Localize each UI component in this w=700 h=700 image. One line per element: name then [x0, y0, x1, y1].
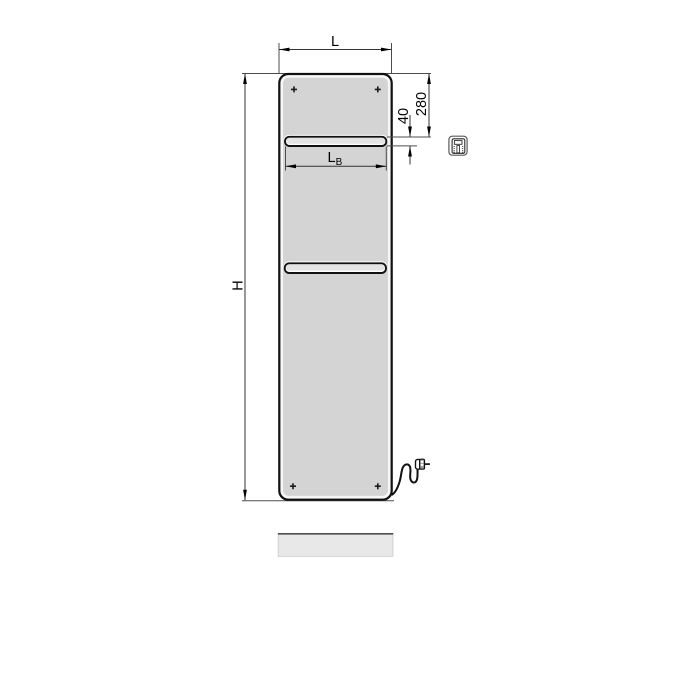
svg-text:L: L: [331, 34, 339, 50]
svg-text:280: 280: [414, 92, 430, 116]
svg-text:40: 40: [396, 108, 412, 124]
svg-text:H: H: [230, 280, 246, 290]
